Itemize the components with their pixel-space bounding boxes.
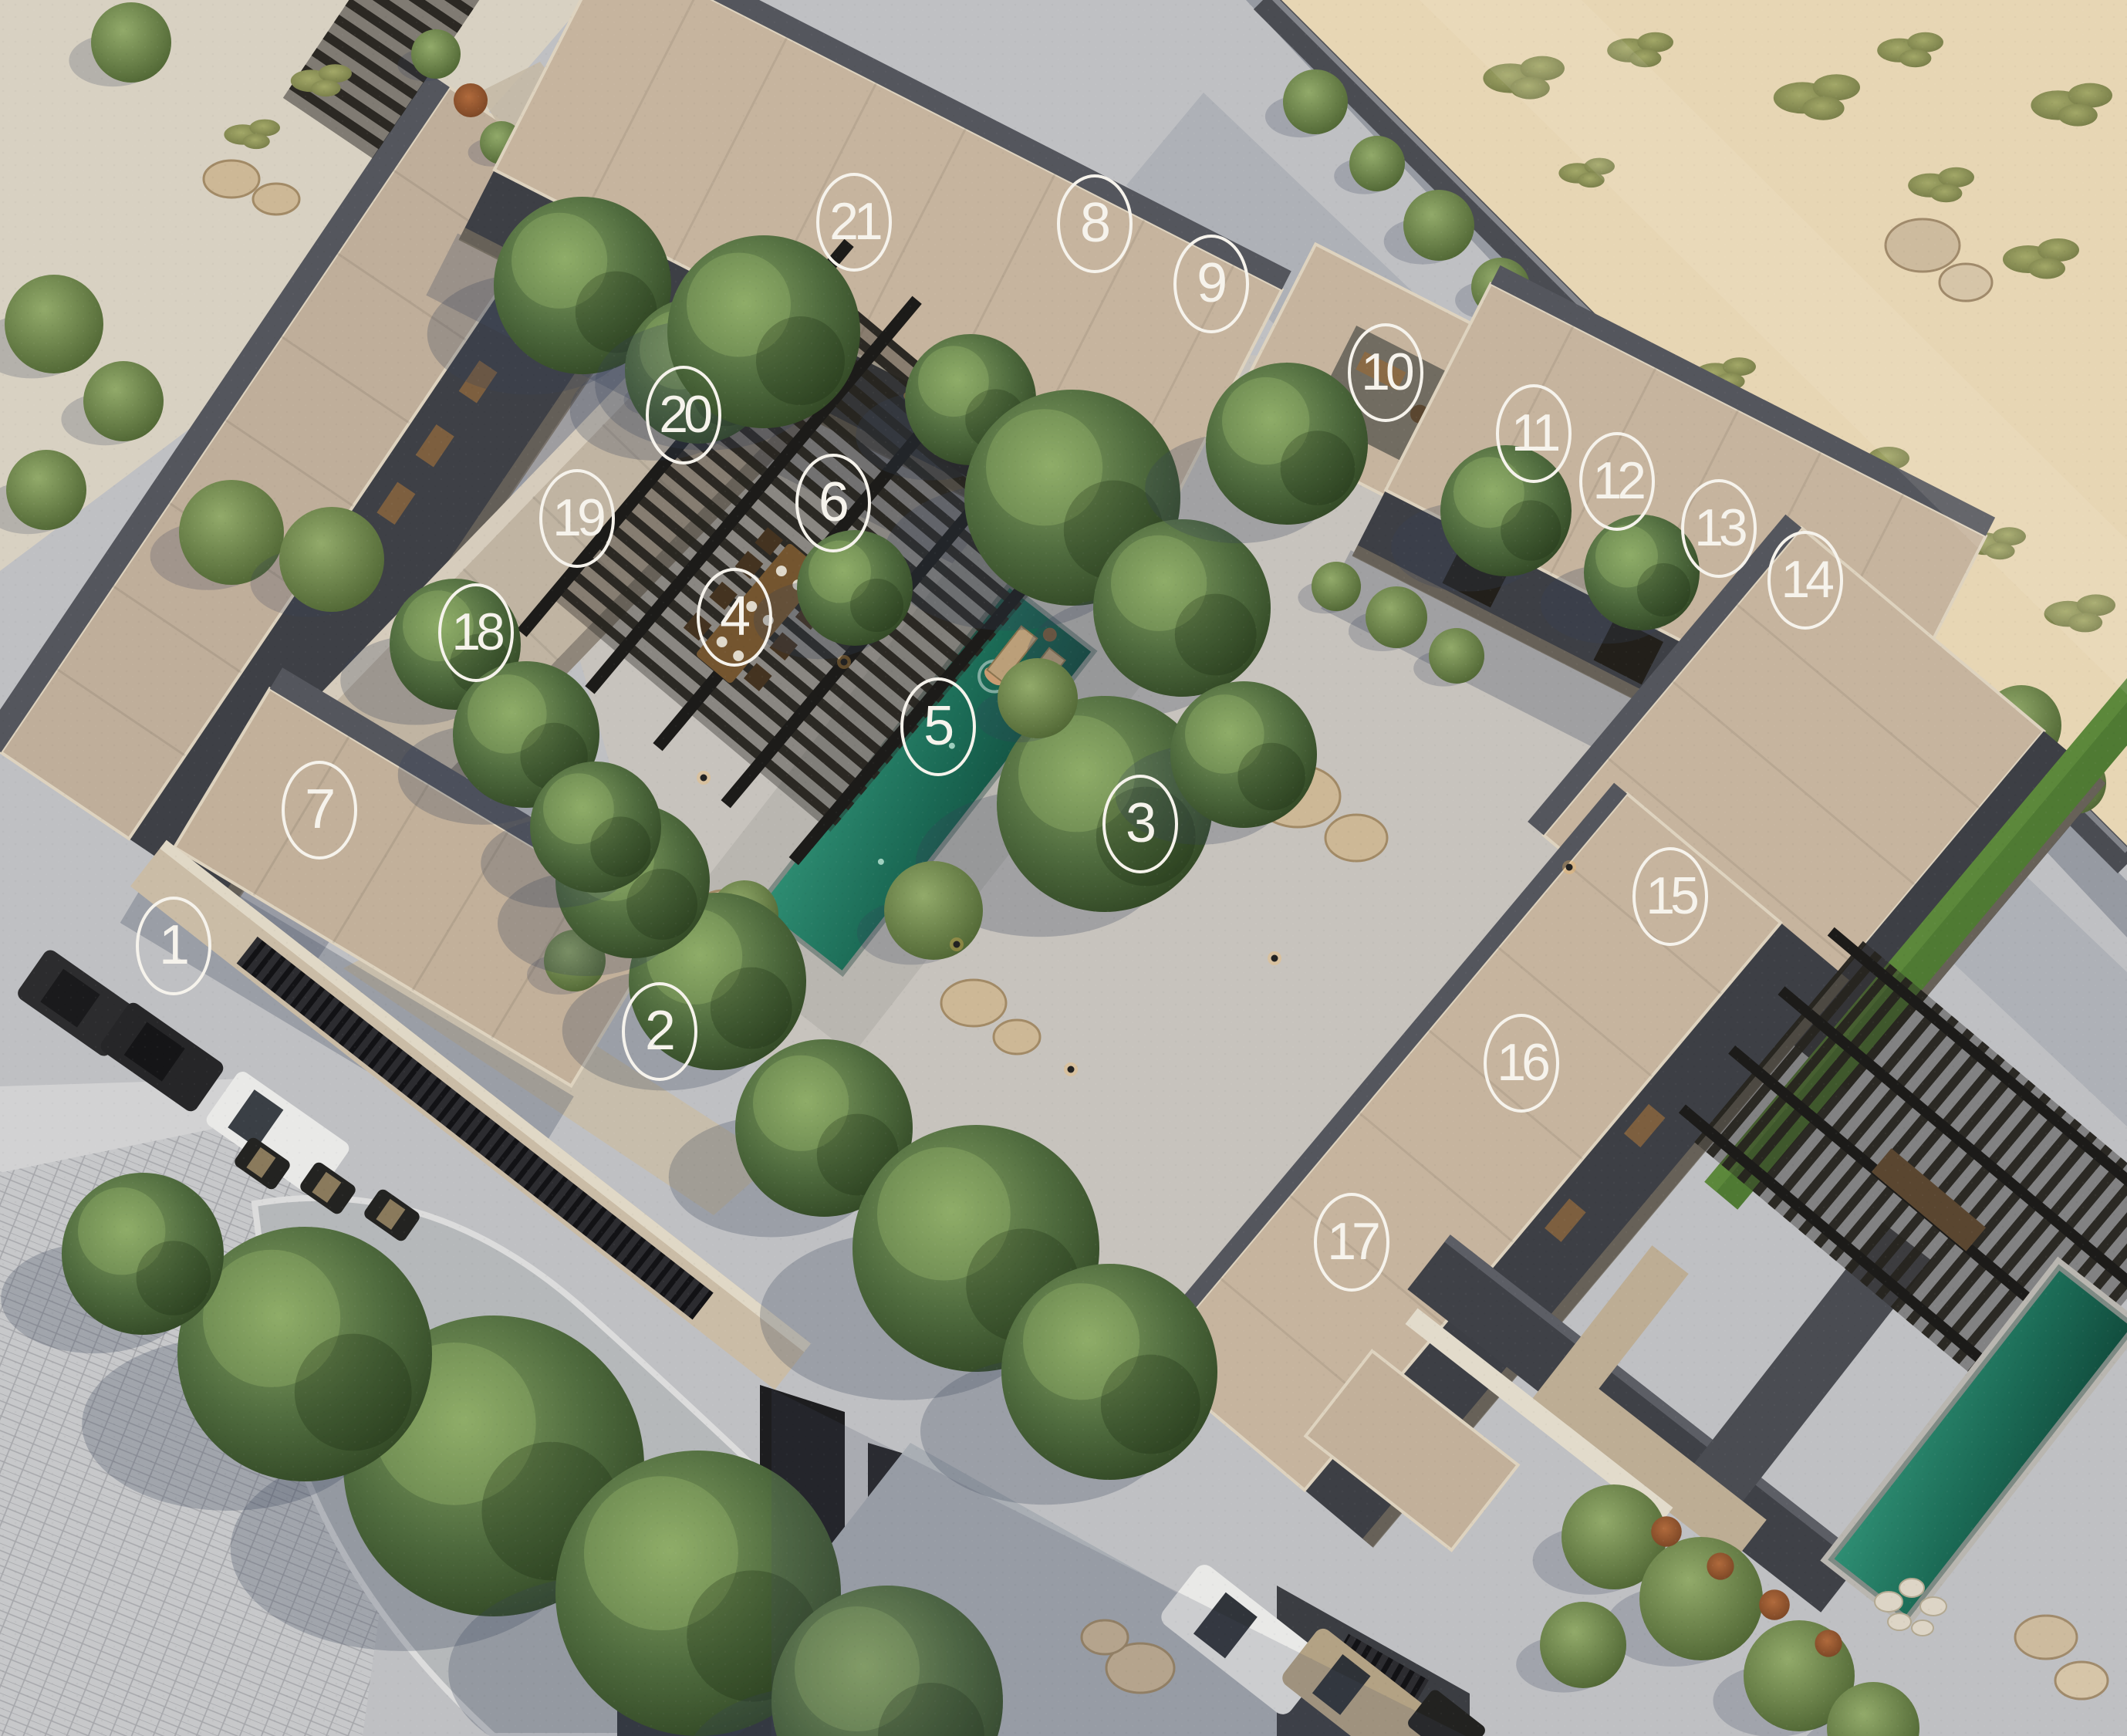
scene-illustration [0, 0, 2127, 1736]
render-canvas: 123456789101112131415161718192021 [0, 0, 2127, 1736]
